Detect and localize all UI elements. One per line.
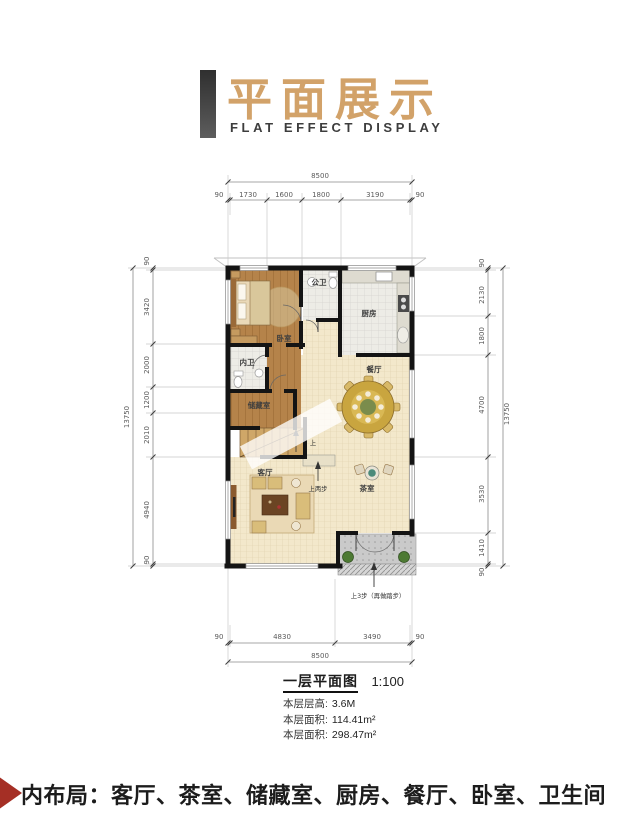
footer-layout-text: 内布局：客厅、茶室、储藏室、厨房、餐厅、卧室、卫生间 — [21, 778, 606, 810]
step-up-label: 上两步 — [309, 484, 328, 493]
window — [410, 465, 415, 519]
nightstand — [231, 271, 240, 278]
plant — [399, 552, 410, 563]
room-label-bedroom: 卧室 — [277, 333, 292, 343]
title-accent-bar — [200, 70, 216, 138]
info-label: 本层层高: — [283, 698, 328, 710]
window — [226, 280, 231, 324]
dim-label: 3490 — [363, 633, 381, 641]
window — [348, 266, 396, 271]
page-subtitle: FLAT EFFECT DISPLAY — [230, 120, 444, 135]
dim-label: 13750 — [123, 406, 131, 428]
dim-label: 90 — [416, 633, 425, 641]
plan-info: 本层层高:3.6M 本层面积:114.41m² 本层面积:298.47m² — [283, 697, 376, 744]
dim-label: 90 — [215, 191, 224, 199]
sofa — [252, 477, 266, 489]
dim-label: 1800 — [478, 327, 486, 345]
side-table — [292, 479, 301, 488]
dim-label: 90 — [215, 633, 224, 641]
info-row-area-2: 本层面积:298.47m² — [283, 728, 376, 744]
red-arrow-icon — [0, 774, 22, 812]
hall-floor — [303, 320, 340, 357]
room-label-dining: 餐厅 — [366, 364, 382, 374]
toilet — [329, 278, 337, 289]
info-row-area-1: 本层面积:114.41m² — [283, 713, 376, 729]
dim-label: 90 — [416, 191, 425, 199]
stairs-up-label: 上 — [310, 438, 316, 447]
dim-label: 90 — [143, 556, 151, 565]
kitchen-sink — [376, 272, 392, 281]
info-value: 114.41m² — [332, 714, 376, 726]
info-value: 3.6M — [332, 698, 355, 710]
porch-steps — [338, 564, 416, 575]
dresser — [231, 336, 257, 344]
dim-label: 1800 — [312, 191, 330, 199]
room-label-public-bath: 公卫 — [312, 278, 327, 287]
window — [410, 277, 415, 311]
page: 平面展示 FLAT EFFECT DISPLAY — [0, 0, 640, 813]
coffee-table — [262, 495, 288, 515]
info-label: 本层面积: — [283, 714, 328, 726]
footer-banner: 内布局：客厅、茶室、储藏室、厨房、餐厅、卧室、卫生间 — [0, 772, 640, 813]
dim-label: 3420 — [143, 298, 151, 316]
dim-label: 13750 — [503, 403, 511, 425]
dining-table — [337, 376, 400, 438]
dim-label: 4700 — [478, 396, 486, 414]
dim-label: 2010 — [143, 426, 151, 444]
dim-label: 1200 — [143, 391, 151, 409]
kitchen-basin — [398, 327, 409, 343]
dim-label: 8500 — [311, 172, 329, 180]
info-label: 本层面积: — [283, 729, 328, 741]
plan-caption-scale: 1:100 — [371, 674, 404, 689]
window — [410, 370, 415, 438]
window — [246, 564, 318, 569]
plan-caption-title: 一层平面图 — [283, 673, 358, 693]
dim-label: 2130 — [478, 286, 486, 304]
info-value: 298.47m² — [332, 729, 376, 741]
page-title: 平面展示 — [227, 63, 443, 128]
sofa — [268, 477, 282, 489]
armchair — [252, 521, 266, 533]
dim-label: 1730 — [239, 191, 257, 199]
dim-label: 3190 — [366, 191, 384, 199]
bath-sink — [255, 369, 263, 377]
dim-label: 90 — [143, 257, 151, 266]
dim-label: 1410 — [478, 539, 486, 557]
room-label-ensuite: 内卫 — [240, 357, 255, 367]
toilet — [234, 377, 242, 388]
info-row-height: 本层层高:3.6M — [283, 697, 376, 713]
side-table — [292, 522, 301, 531]
room-label-kitchen: 厨房 — [362, 308, 377, 318]
dim-label: 3530 — [478, 485, 486, 503]
plan-caption: 一层平面图 1:100 — [283, 671, 404, 691]
dim-label: 4830 — [273, 633, 291, 641]
room-label-living: 客厅 — [257, 467, 273, 477]
sofa — [296, 493, 310, 519]
room-label-tea: 茶室 — [359, 483, 375, 493]
nightstand — [231, 329, 240, 336]
plant — [343, 552, 354, 563]
room-label-storage: 储藏室 — [248, 400, 271, 410]
window — [240, 266, 268, 271]
window — [226, 481, 231, 539]
tv — [233, 497, 236, 517]
dim-label: 90 — [478, 259, 486, 268]
dim-label: 8500 — [311, 652, 329, 660]
dim-label: 1600 — [275, 191, 293, 199]
entry-steps-label: 上3步（再做踏步） — [351, 591, 405, 600]
dim-label: 90 — [478, 568, 486, 577]
dim-label: 4940 — [143, 501, 151, 519]
dim-label: 2000 — [143, 356, 151, 374]
floor-plan: 8500 90 1730 1600 1800 3190 90 13750 90 … — [0, 155, 640, 672]
